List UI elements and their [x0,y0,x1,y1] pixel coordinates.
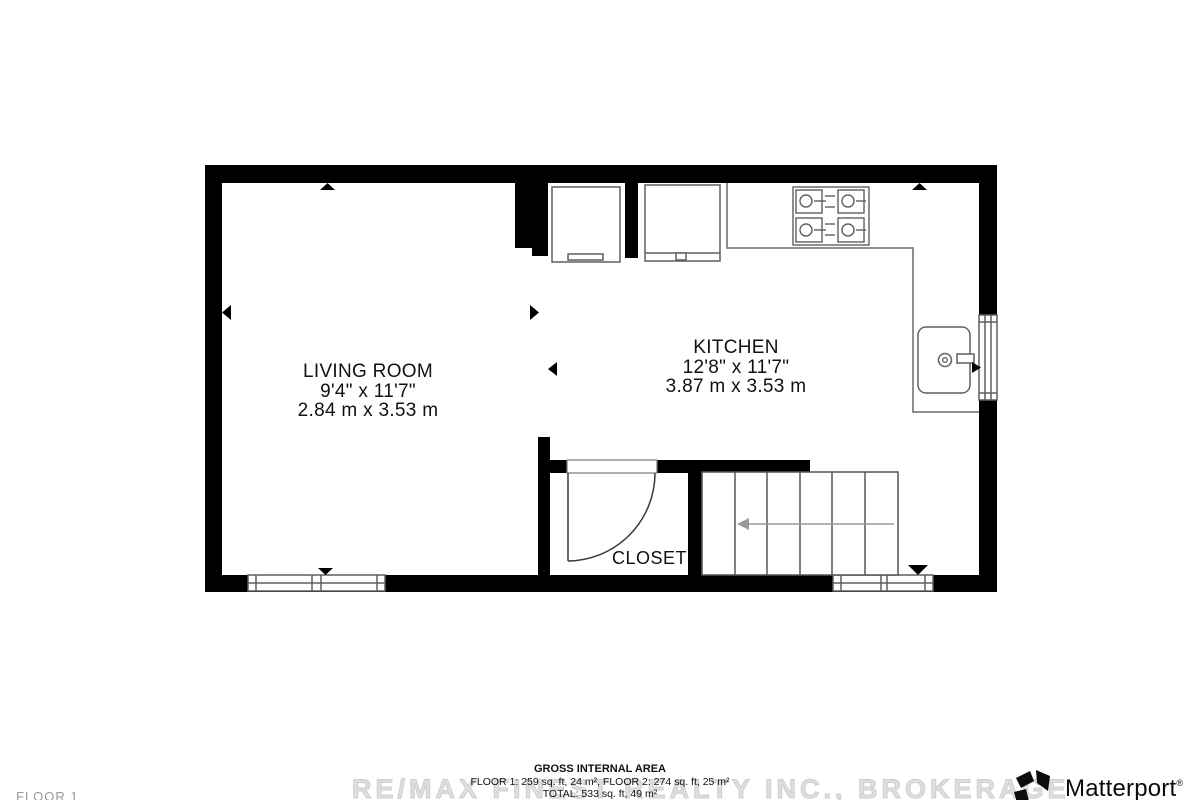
sink-icon [918,327,981,393]
gross-area-heading: GROSS INTERNAL AREA [0,763,1200,776]
closet-door [567,460,657,561]
appliance-icon [645,185,720,261]
marker-bottom-left-icon [318,568,333,575]
marker-top-right-icon [912,183,927,190]
stairs [702,472,898,575]
kitchen-name: KITCHEN [626,338,846,358]
window-bottom-left [248,575,385,591]
window-right-wall [979,315,997,400]
marker-left-wall-icon [222,305,231,320]
stove-icon [793,187,869,245]
marker-top-left-icon [320,183,335,190]
kitchen-label: KITCHEN 12'8" x 11'7" 3.87 m x 3.53 m [626,338,846,397]
window-bottom-right [833,575,933,591]
floorplan-page: RE/MAX FINEST REALTY INC., BROKERAGE [0,0,1200,800]
marker-bottom-right-icon [908,565,928,575]
marker-passage-right-icon [530,305,539,320]
gross-area-footer: GROSS INTERNAL AREA FLOOR 1: 259 sq. ft,… [0,763,1200,800]
closet-label: CLOSET [612,548,687,569]
living-room-label: LIVING ROOM 9'4" x 11'7" 2.84 m x 3.53 m [258,362,478,421]
floorplan-drawing [0,0,1200,800]
gross-area-floors: FLOOR 1: 259 sq. ft, 24 m², FLOOR 2: 274… [0,776,1200,789]
refrigerator-icon [552,187,620,262]
kitchen-dim-metric: 3.87 m x 3.53 m [626,377,846,397]
living-room-name: LIVING ROOM [258,362,478,382]
marker-passage-left-icon [548,362,557,376]
living-room-dim-metric: 2.84 m x 3.53 m [258,401,478,421]
kitchen-dim-imperial: 12'8" x 11'7" [626,358,846,378]
living-room-dim-imperial: 9'4" x 11'7" [258,382,478,402]
gross-area-total: TOTAL: 533 sq. ft, 49 m² [0,788,1200,800]
